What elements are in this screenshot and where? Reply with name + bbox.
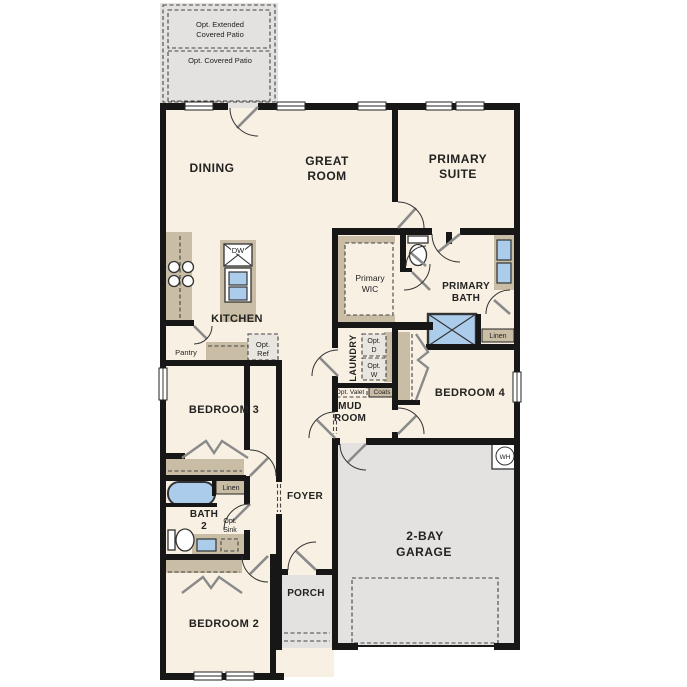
primary-sink — [497, 263, 511, 283]
wall-seg — [452, 103, 456, 110]
label-garage: 2-BAY — [406, 529, 443, 543]
wall-seg — [276, 569, 282, 650]
label-patio-extended-2: Covered Patio — [196, 30, 244, 39]
wall-seg — [332, 643, 358, 650]
label-linen-primary: Linen — [489, 333, 506, 340]
label-coats: Coats — [374, 389, 392, 396]
wall-seg — [160, 673, 194, 680]
label-primary-suite: PRIMARY — [429, 152, 487, 166]
wall-seg — [494, 643, 520, 650]
wall-seg — [160, 400, 166, 680]
label-kitchen: KITCHEN — [211, 313, 263, 325]
label-opt-ref: Opt. — [256, 340, 270, 349]
floorplan-svg: Opt. Extended Covered Patio Opt. Covered… — [0, 0, 687, 687]
wall-seg — [270, 554, 276, 675]
floorplan-page: Opt. Extended Covered Patio Opt. Covered… — [0, 0, 687, 687]
wall-seg — [222, 673, 226, 680]
window — [277, 102, 305, 110]
island-sink-bowl — [229, 287, 247, 300]
wall-seg — [276, 514, 282, 569]
label-mud-room-2: ROOM — [334, 413, 366, 424]
wall-seg — [163, 360, 282, 366]
primary-sink — [497, 240, 511, 260]
label-opt-valet: Opt. Valet — [336, 389, 365, 396]
label-opt-dryer-2: D — [371, 347, 376, 354]
wall-seg — [476, 314, 481, 344]
wall-seg — [163, 475, 246, 481]
stove-burner — [169, 262, 180, 273]
wall-seg — [514, 402, 520, 650]
window — [185, 102, 213, 110]
wall-seg — [258, 103, 277, 110]
label-water-heater: WH — [500, 454, 511, 461]
label-dining: DINING — [190, 161, 235, 175]
label-primary-suite-2: SUITE — [439, 167, 477, 181]
label-bath2-2: 2 — [201, 521, 207, 532]
label-bedroom4: BEDROOM 4 — [435, 387, 506, 399]
wall-seg — [332, 322, 400, 328]
label-garage-2: GARAGE — [396, 545, 452, 559]
kitchen-counter-lower — [206, 342, 250, 360]
label-primary-bath-2: BATH — [452, 293, 480, 304]
wall-seg — [460, 228, 520, 235]
label-opt-sink-2: Sink — [223, 527, 237, 534]
window — [456, 102, 484, 110]
island-sink-bowl — [229, 272, 247, 285]
label-primary-bath: PRIMARY — [442, 281, 490, 292]
bedroom4-closet-shelf — [398, 332, 410, 402]
label-foyer: FOYER — [287, 491, 323, 502]
label-opt-ref-2: Ref — [257, 349, 270, 358]
wall-seg — [400, 232, 406, 272]
label-opt-washer: Opt. — [367, 363, 380, 370]
window — [358, 102, 386, 110]
window — [226, 672, 254, 680]
wall-seg — [244, 530, 250, 554]
label-linen-bath2: Linen — [222, 485, 239, 492]
wic-shelf-top — [345, 236, 395, 243]
label-primary-wic-2: WIC — [362, 284, 379, 294]
stove-burner — [183, 276, 194, 287]
wic-shelf-bottom — [345, 315, 395, 322]
wall-seg — [332, 438, 338, 643]
bath2-tub — [168, 482, 215, 505]
bedroom3-closet-shelf — [166, 459, 244, 475]
wall-seg — [332, 228, 338, 348]
wall-seg — [305, 103, 358, 110]
wall-seg — [400, 268, 412, 272]
wall-seg — [332, 383, 398, 388]
wall-seg — [392, 103, 398, 202]
wall-seg — [396, 322, 433, 330]
wall-seg — [366, 438, 514, 445]
bath2-sink — [197, 539, 216, 551]
wall-seg — [160, 103, 166, 368]
label-opt-washer-2: W — [371, 372, 378, 379]
wall-seg — [514, 103, 520, 372]
wall-seg — [163, 554, 250, 560]
porch-slab — [282, 575, 332, 648]
label-bedroom2: BEDROOM 2 — [189, 618, 259, 630]
wall-seg — [276, 360, 282, 482]
wall-seg — [426, 344, 520, 350]
wall-seg — [332, 228, 432, 235]
label-laundry: LAUNDRY — [348, 334, 358, 381]
label-patio-covered: Opt. Covered Patio — [188, 56, 252, 65]
label-bedroom3: BEDROOM 3 — [189, 404, 259, 416]
wall-seg — [213, 103, 228, 110]
wall-seg — [163, 453, 185, 459]
label-primary-wic: Primary — [355, 273, 385, 283]
label-bath2: BATH — [190, 509, 218, 520]
wall-seg — [212, 478, 216, 496]
stove-burner — [169, 276, 180, 287]
label-dishwasher: DW — [232, 246, 245, 255]
window — [426, 102, 452, 110]
bath2-toilet-bowl — [176, 529, 194, 551]
wall-seg — [396, 400, 420, 405]
label-porch: PORCH — [287, 588, 325, 599]
bedroom2-closet-shelf — [166, 560, 242, 573]
patio-slab — [160, 3, 278, 104]
label-mud-room: MUD — [338, 401, 362, 412]
label-opt-dryer: Opt. — [367, 338, 380, 345]
label-great-room-2: ROOM — [307, 169, 346, 183]
wall-seg — [316, 569, 332, 575]
wall-seg — [392, 432, 398, 438]
window — [513, 372, 521, 402]
bath2-toilet-tank — [168, 530, 175, 550]
wall-seg — [392, 328, 398, 383]
wall-seg — [163, 503, 217, 507]
wall-seg — [254, 673, 284, 680]
wall-seg — [276, 569, 288, 575]
garage-slab — [338, 443, 514, 645]
wall-seg — [160, 320, 194, 326]
primary-toilet-tank — [408, 236, 428, 243]
optional-patio — [160, 3, 278, 104]
label-opt-sink: Opt. — [223, 518, 236, 525]
window — [159, 368, 167, 400]
wic-shelf-left — [338, 236, 345, 322]
window — [194, 672, 222, 680]
wall-seg — [392, 388, 398, 410]
label-patio-extended: Opt. Extended — [196, 20, 244, 29]
patio-door-threshold — [228, 103, 258, 108]
label-pantry: Pantry — [175, 348, 197, 357]
label-great-room: GREAT — [305, 154, 349, 168]
stove-burner — [183, 262, 194, 273]
